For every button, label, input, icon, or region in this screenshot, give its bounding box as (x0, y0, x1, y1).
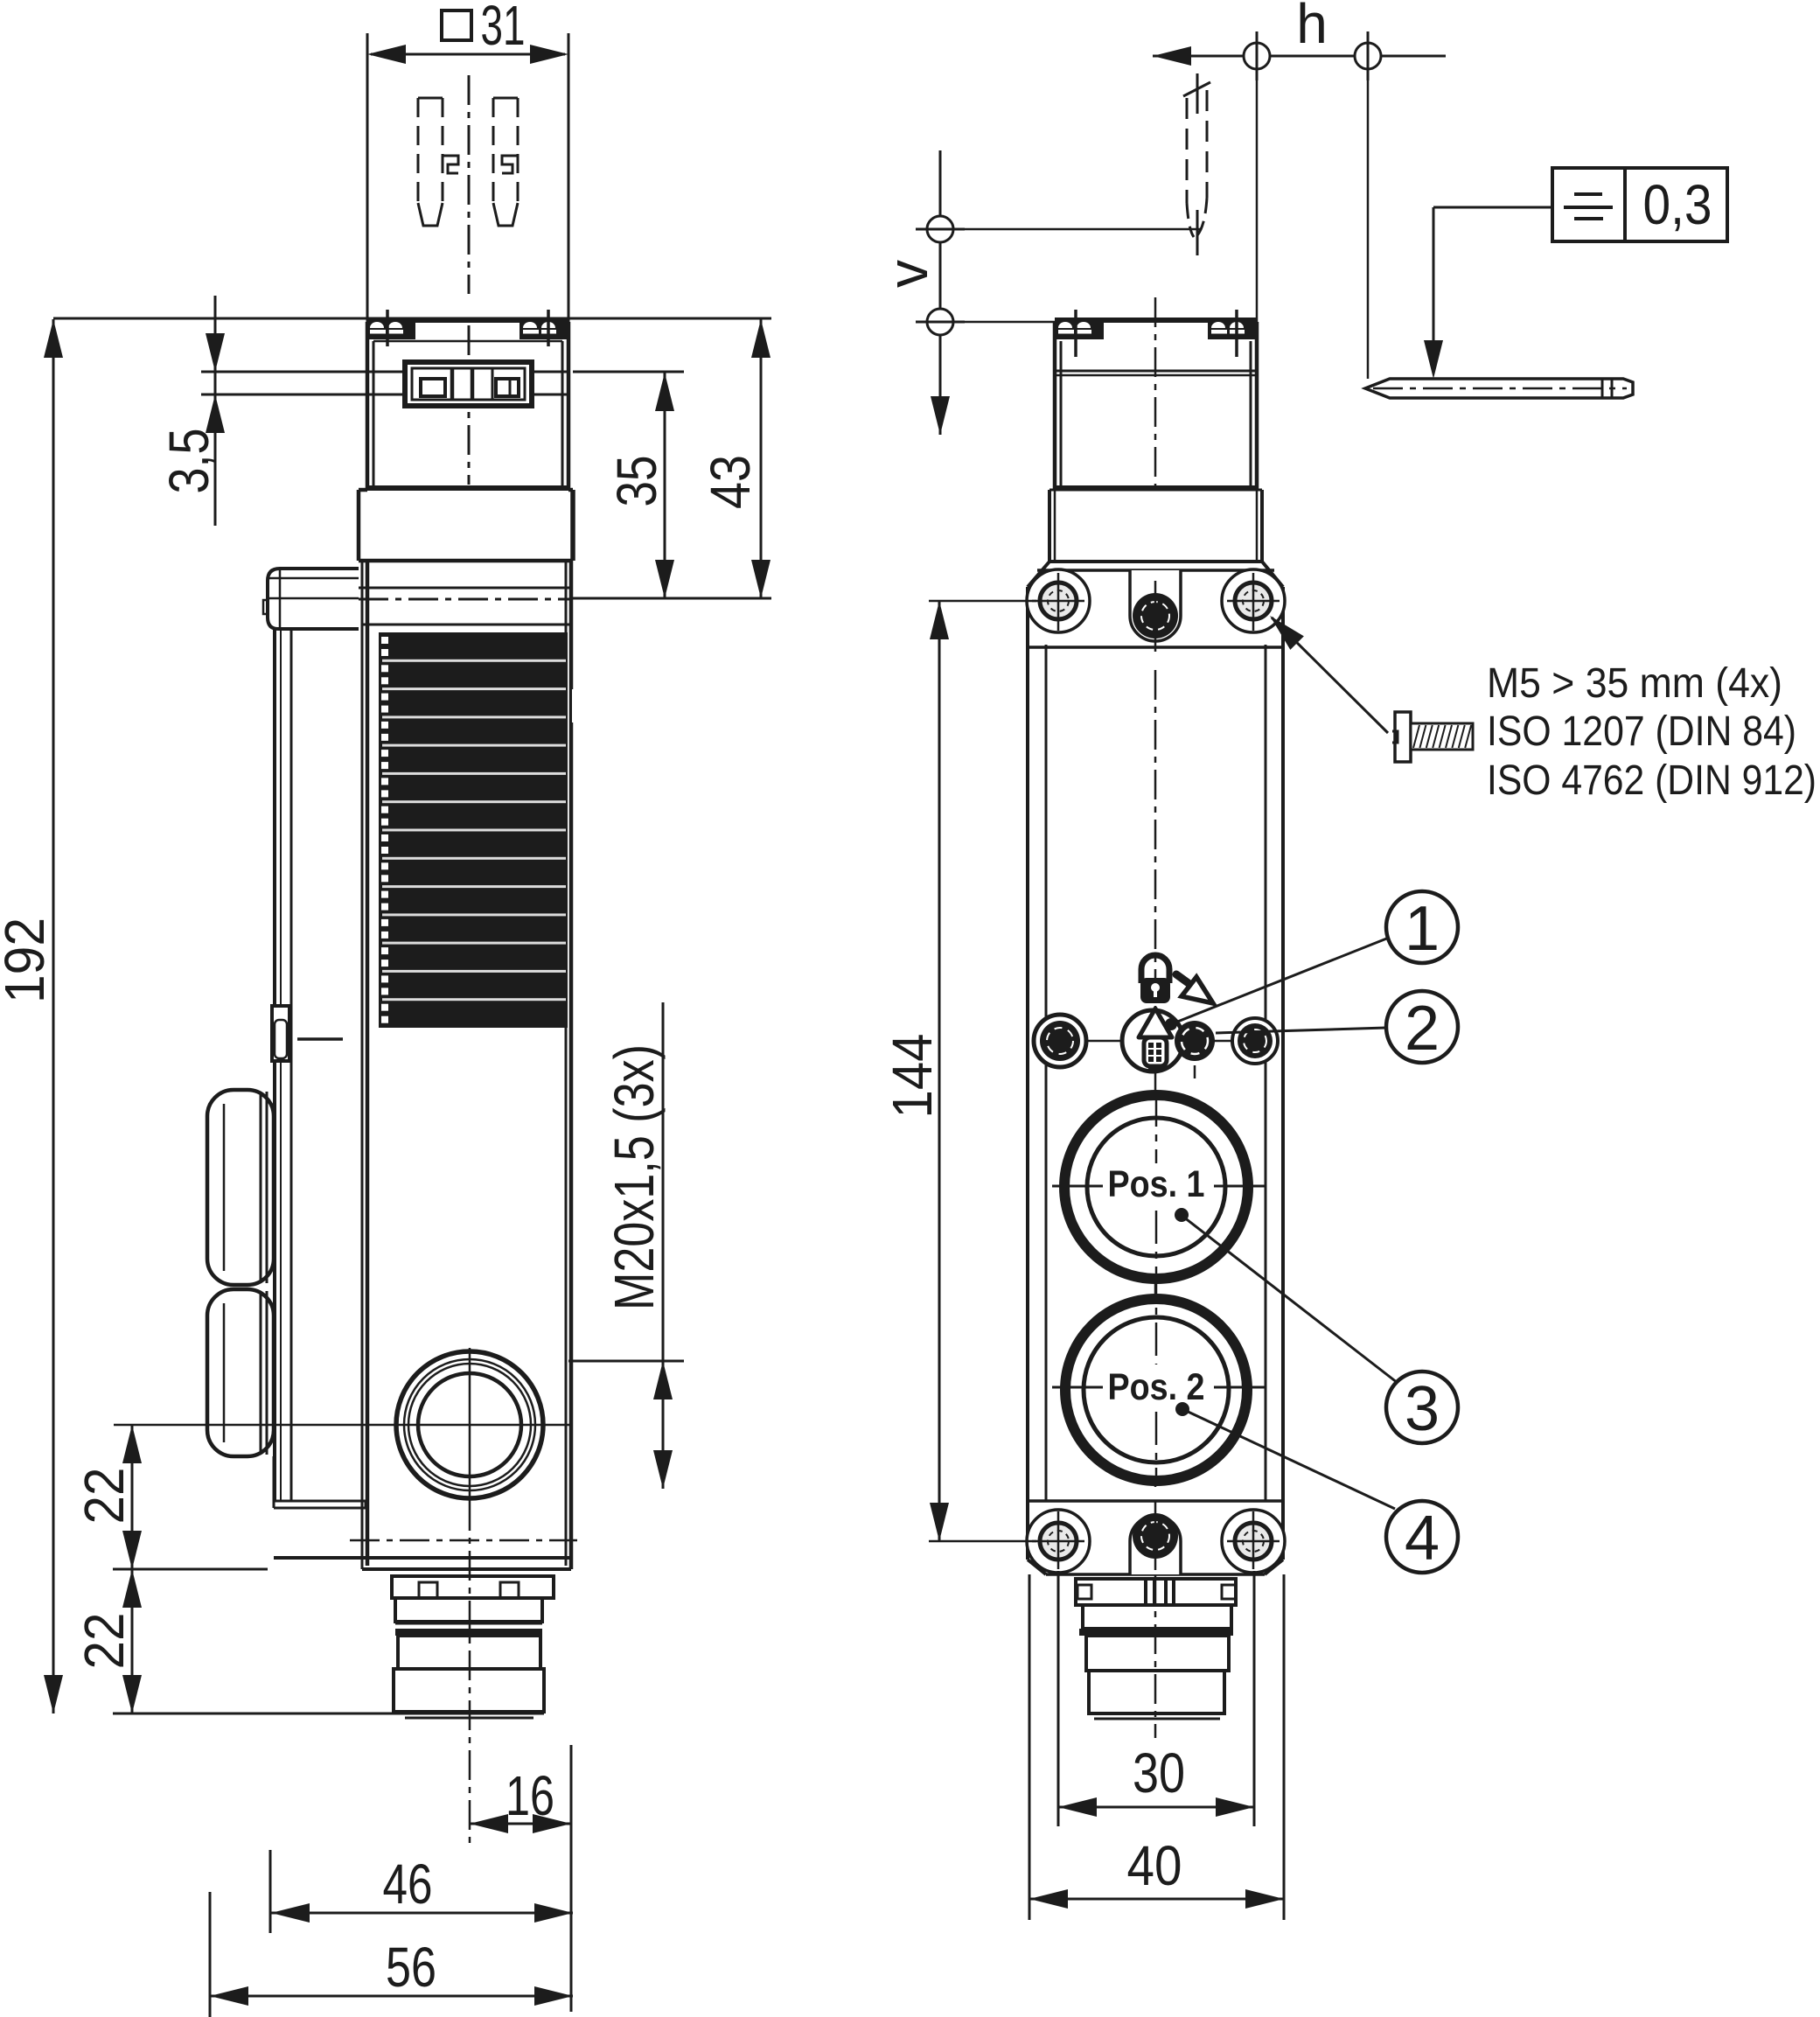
svg-text:56: 56 (386, 1936, 436, 1999)
svg-text:192: 192 (0, 918, 56, 1003)
svg-text:ISO 4762 (DIN 912): ISO 4762 (DIN 912) (1487, 757, 1817, 804)
svg-text:Pos. 2: Pos. 2 (1108, 1366, 1205, 1408)
svg-text:h: h (1296, 0, 1328, 55)
svg-text:3: 3 (1405, 1374, 1440, 1444)
svg-text:4: 4 (1405, 1504, 1440, 1574)
svg-text:40: 40 (1127, 1834, 1182, 1897)
svg-text:16: 16 (506, 1764, 554, 1827)
svg-text:22: 22 (73, 1613, 136, 1670)
svg-text:31: 31 (481, 0, 526, 57)
svg-text:Pos. 1: Pos. 1 (1108, 1163, 1205, 1205)
svg-text:43: 43 (699, 455, 762, 509)
svg-text:22: 22 (73, 1468, 136, 1525)
svg-text:1: 1 (1405, 894, 1440, 964)
svg-text:M20x1,5 (3x): M20x1,5 (3x) (603, 1044, 666, 1310)
svg-text:46: 46 (383, 1853, 433, 1916)
svg-text:30: 30 (1133, 1741, 1185, 1804)
svg-text:35: 35 (605, 456, 668, 507)
svg-text:v: v (876, 260, 939, 288)
svg-text:ISO 1207 (DIN 84): ISO 1207 (DIN 84) (1487, 708, 1796, 755)
svg-text:M5 > 35 mm (4x): M5 > 35 mm (4x) (1487, 660, 1782, 707)
svg-text:2: 2 (1405, 994, 1440, 1064)
svg-text:144: 144 (881, 1034, 944, 1119)
svg-text:0,3: 0,3 (1643, 173, 1712, 236)
svg-text:3,5: 3,5 (157, 429, 220, 494)
